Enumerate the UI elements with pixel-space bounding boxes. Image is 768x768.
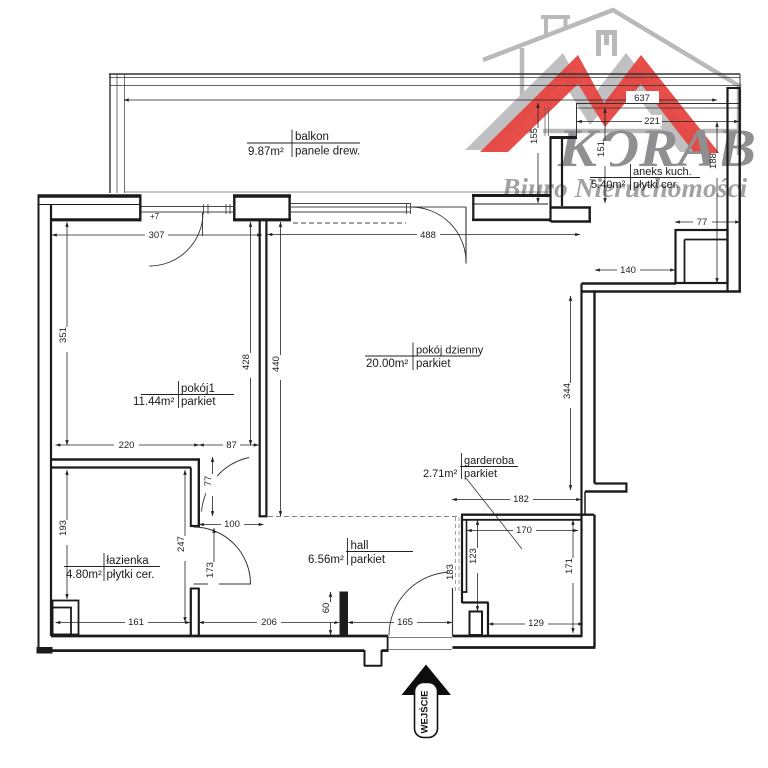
svg-text:247: 247 <box>176 536 187 552</box>
svg-text:parkiet: parkiet <box>464 468 497 480</box>
svg-text:9.87m²: 9.87m² <box>248 146 284 158</box>
svg-text:151: 151 <box>596 141 607 157</box>
svg-text:parkiet: parkiet <box>181 396 216 408</box>
svg-text:60: 60 <box>321 603 332 614</box>
svg-text:5.40m²: 5.40m² <box>591 179 626 191</box>
svg-text:183: 183 <box>445 564 456 580</box>
svg-text:pokój dzienny: pokój dzienny <box>416 345 484 357</box>
svg-text:4.80m²: 4.80m² <box>66 569 102 581</box>
svg-text:77: 77 <box>203 476 214 487</box>
svg-text:440: 440 <box>271 356 282 372</box>
svg-text:+7: +7 <box>150 212 160 221</box>
svg-text:188: 188 <box>708 153 719 169</box>
svg-text:WEJŚCIE: WEJŚCIE <box>419 691 431 734</box>
svg-text:170: 170 <box>516 525 532 536</box>
svg-text:panele drew.: panele drew. <box>295 146 360 158</box>
svg-text:182: 182 <box>513 494 529 505</box>
svg-text:parkiet: parkiet <box>351 554 386 566</box>
svg-text:173: 173 <box>205 562 216 578</box>
svg-text:płytki cer.: płytki cer. <box>633 179 679 191</box>
svg-text:344: 344 <box>562 383 573 399</box>
svg-text:161: 161 <box>128 617 144 628</box>
svg-text:garderoba: garderoba <box>464 455 515 467</box>
svg-text:77: 77 <box>697 217 708 228</box>
svg-text:307: 307 <box>149 230 165 241</box>
svg-text:20.00m²: 20.00m² <box>366 358 408 370</box>
svg-text:aneks kuch.: aneks kuch. <box>633 166 692 178</box>
svg-text:221: 221 <box>644 116 660 127</box>
svg-text:pokój1: pokój1 <box>181 383 215 395</box>
svg-text:2.71m²: 2.71m² <box>423 468 458 480</box>
svg-text:6.56m²: 6.56m² <box>308 554 344 566</box>
svg-text:140: 140 <box>620 265 636 276</box>
svg-text:płytki cer.: płytki cer. <box>107 569 155 581</box>
svg-text:171: 171 <box>564 558 575 574</box>
svg-text:123: 123 <box>468 548 479 564</box>
svg-text:parkiet: parkiet <box>416 358 451 370</box>
svg-text:hall: hall <box>351 540 369 552</box>
svg-text:488: 488 <box>420 230 436 241</box>
svg-text:155: 155 <box>529 128 540 144</box>
svg-text:129: 129 <box>528 618 544 629</box>
svg-text:428: 428 <box>241 354 252 370</box>
svg-text:351: 351 <box>58 327 69 343</box>
svg-text:11.44m²: 11.44m² <box>133 396 175 408</box>
svg-text:193: 193 <box>58 520 69 536</box>
svg-text:100: 100 <box>224 519 240 530</box>
svg-text:637: 637 <box>634 93 650 104</box>
svg-text:87: 87 <box>226 440 237 451</box>
svg-text:balkon: balkon <box>295 131 329 143</box>
svg-text:165: 165 <box>397 617 413 628</box>
svg-text:220: 220 <box>119 440 135 451</box>
svg-text:łazienka: łazienka <box>107 555 150 567</box>
svg-text:206: 206 <box>261 617 277 628</box>
